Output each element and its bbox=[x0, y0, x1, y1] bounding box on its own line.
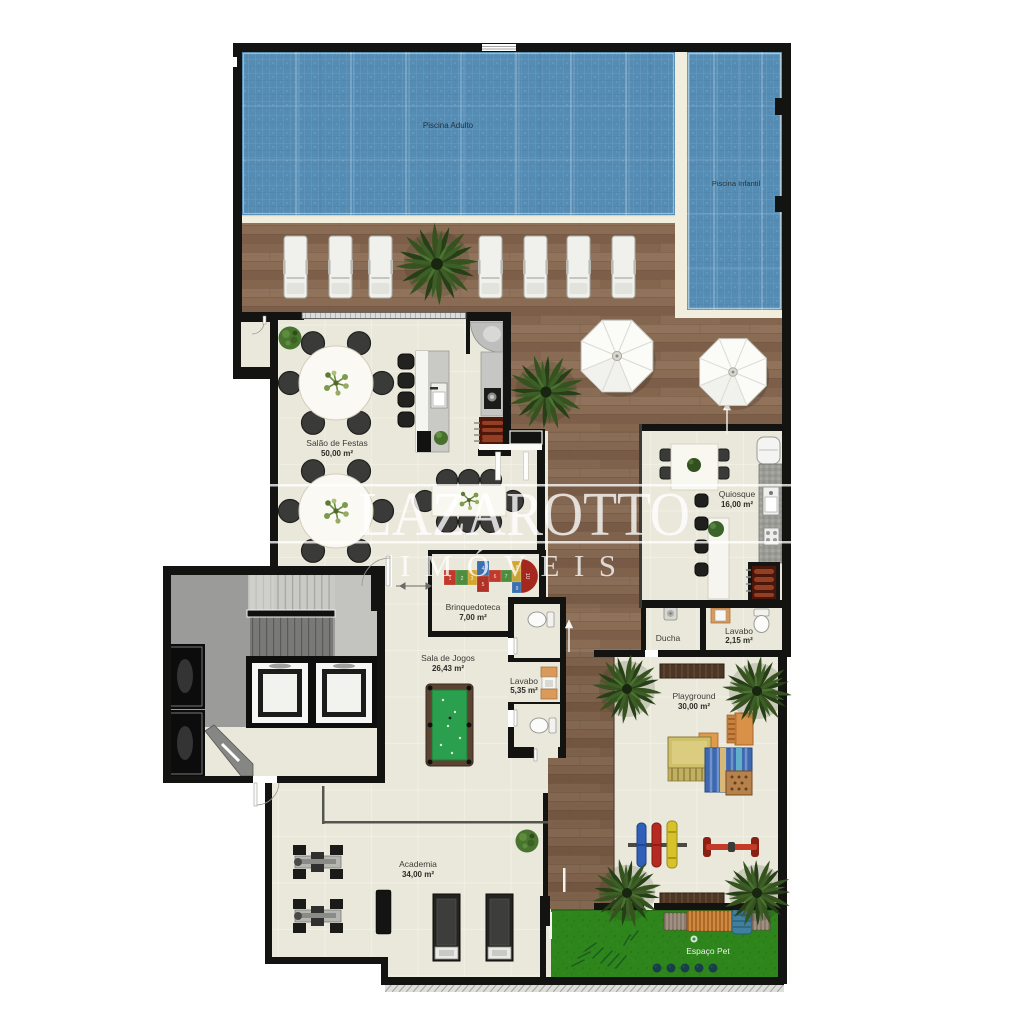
svg-text:16,00 m²: 16,00 m² bbox=[721, 500, 753, 509]
svg-text:Lavabo: Lavabo bbox=[725, 626, 753, 636]
svg-text:LAZAROTTO: LAZAROTTO bbox=[358, 481, 690, 549]
svg-text:5,35 m²: 5,35 m² bbox=[510, 686, 538, 695]
svg-text:Lavabo: Lavabo bbox=[510, 676, 538, 686]
svg-text:2,15 m²: 2,15 m² bbox=[725, 636, 753, 645]
svg-text:Piscina Infantil: Piscina Infantil bbox=[712, 179, 761, 188]
svg-text:Quiosque: Quiosque bbox=[719, 489, 756, 499]
svg-text:IMÓVEIS: IMÓVEIS bbox=[400, 548, 630, 583]
svg-text:50,00 m²: 50,00 m² bbox=[321, 449, 353, 458]
svg-text:Brinquedoteca: Brinquedoteca bbox=[446, 602, 501, 612]
svg-text:30,00 m²: 30,00 m² bbox=[678, 702, 710, 711]
svg-text:Piscina Adulto: Piscina Adulto bbox=[423, 121, 474, 130]
svg-text:7,00 m²: 7,00 m² bbox=[459, 613, 487, 622]
svg-text:Espaço Pet: Espaço Pet bbox=[686, 946, 730, 956]
svg-text:34,00 m²: 34,00 m² bbox=[402, 870, 434, 879]
svg-text:9: 9 bbox=[516, 586, 519, 592]
svg-text:Playground: Playground bbox=[672, 691, 715, 701]
svg-text:Salão de Festas: Salão de Festas bbox=[306, 438, 367, 448]
svg-text:26,43 m²: 26,43 m² bbox=[432, 664, 464, 673]
svg-text:Ducha: Ducha bbox=[656, 633, 681, 643]
svg-text:Academia: Academia bbox=[399, 859, 437, 869]
svg-text:Sala de Jogos: Sala de Jogos bbox=[421, 653, 475, 663]
